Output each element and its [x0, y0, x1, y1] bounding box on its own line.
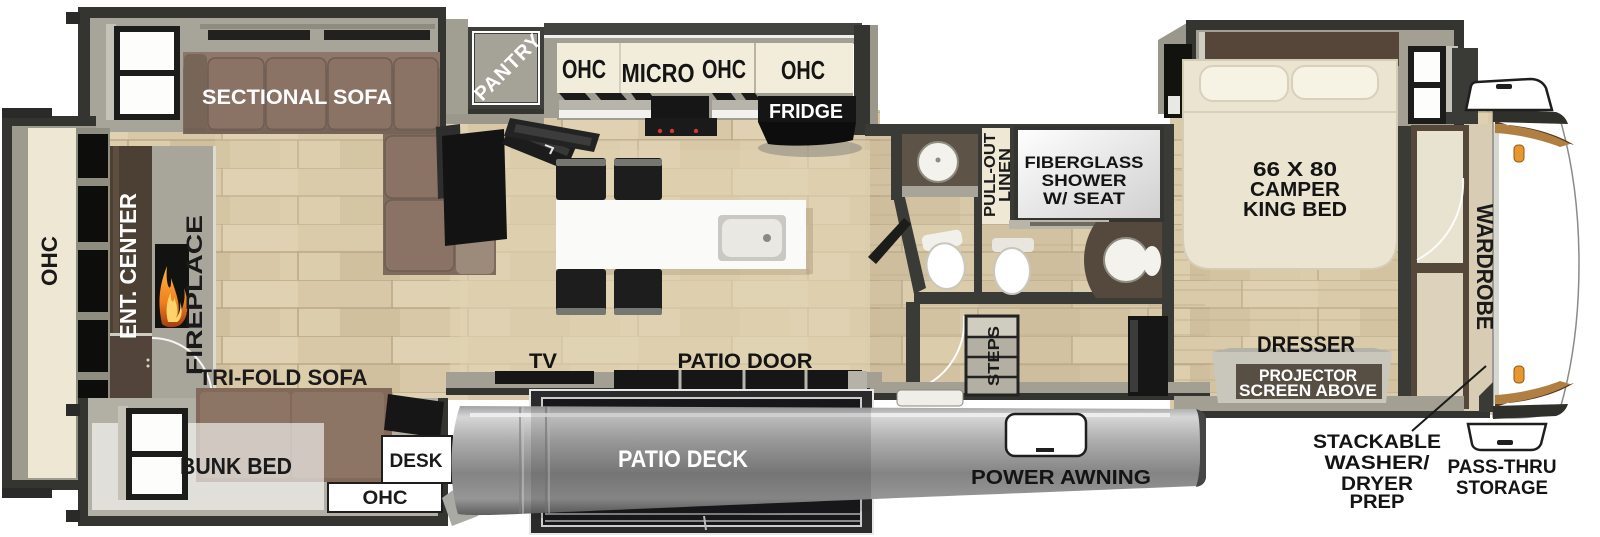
svg-text:W/ SEAT: W/ SEAT — [1043, 189, 1126, 208]
svg-text:STEPS: STEPS — [986, 326, 1003, 386]
svg-text:SHOWER: SHOWER — [1042, 171, 1127, 190]
svg-text:FRIDGE: FRIDGE — [769, 101, 843, 123]
svg-text:PREP: PREP — [1350, 492, 1405, 513]
svg-text:WASHER/: WASHER/ — [1325, 453, 1431, 474]
svg-text:FIBERGLASS: FIBERGLASS — [1025, 153, 1144, 172]
svg-text:STACKABLE: STACKABLE — [1313, 432, 1441, 453]
svg-text:TRI-FOLD SOFA: TRI-FOLD SOFA — [199, 365, 368, 390]
svg-text:SECTIONAL SOFA: SECTIONAL SOFA — [202, 86, 392, 109]
svg-text:POWER AWNING: POWER AWNING — [971, 467, 1151, 489]
svg-text:KING BED: KING BED — [1243, 199, 1347, 221]
svg-text:SCREEN ABOVE: SCREEN ABOVE — [1239, 381, 1377, 400]
svg-text:DESK: DESK — [390, 451, 443, 472]
svg-text:CAMPER: CAMPER — [1250, 179, 1341, 201]
svg-text:WARDROBE: WARDROBE — [1472, 204, 1498, 330]
svg-text:ENT. CENTER: ENT. CENTER — [115, 193, 141, 339]
svg-text:BUNK BED: BUNK BED — [180, 453, 292, 479]
svg-text:PATIO DECK: PATIO DECK — [618, 446, 749, 473]
svg-text:PASS-THRU: PASS-THRU — [1448, 457, 1557, 478]
svg-text:66 X 80: 66 X 80 — [1253, 159, 1337, 181]
svg-text:TV: TV — [529, 350, 557, 373]
svg-text:STORAGE: STORAGE — [1456, 478, 1548, 499]
svg-text:OHC: OHC — [781, 55, 825, 85]
svg-text:PATIO DOOR: PATIO DOOR — [678, 350, 813, 373]
svg-text:FIREPLACE: FIREPLACE — [182, 215, 207, 375]
svg-text:OHC: OHC — [562, 54, 606, 84]
svg-text:DRESSER: DRESSER — [1257, 332, 1355, 357]
svg-text:MICRO: MICRO — [622, 58, 695, 88]
svg-text:OHC: OHC — [363, 488, 408, 509]
svg-text:OHC: OHC — [702, 54, 746, 84]
svg-text:LINEN: LINEN — [997, 148, 1014, 202]
svg-text:OHC: OHC — [37, 236, 62, 286]
